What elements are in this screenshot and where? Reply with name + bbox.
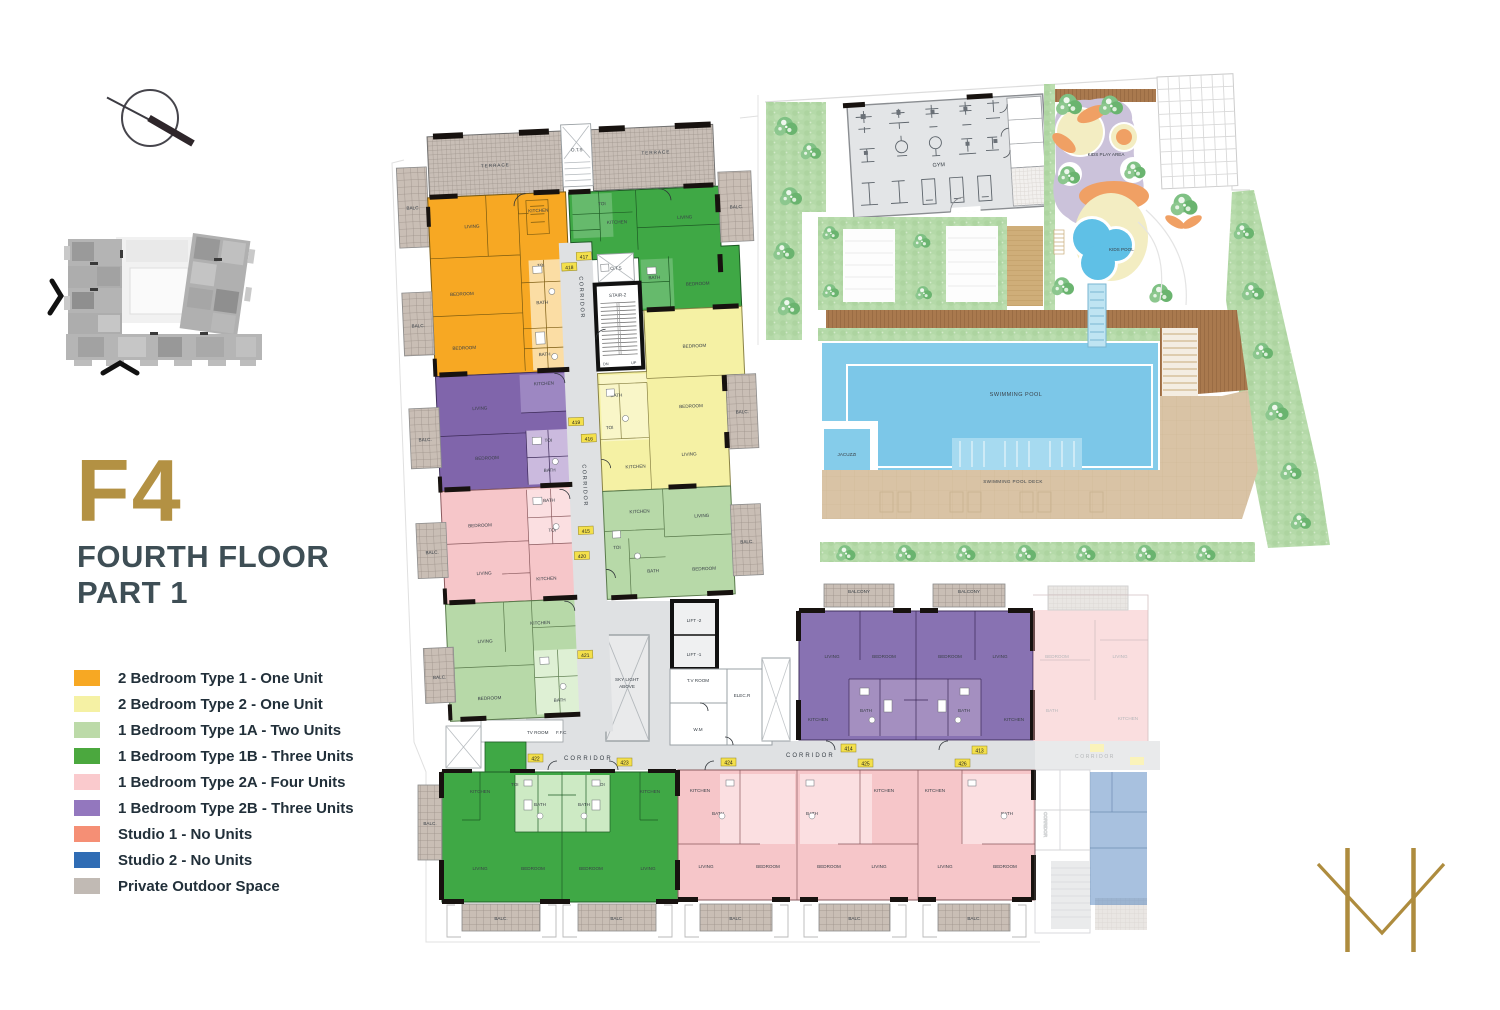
svg-text:BALC.: BALC. xyxy=(494,916,507,921)
svg-text:DN: DN xyxy=(603,362,609,366)
svg-text:W.M: W.M xyxy=(693,727,702,732)
svg-text:BEDROOM: BEDROOM xyxy=(682,343,706,349)
svg-text:O.T.S: O.T.S xyxy=(571,147,583,152)
svg-text:LIVING: LIVING xyxy=(472,405,488,411)
svg-text:SKY LIGHT: SKY LIGHT xyxy=(615,677,639,682)
svg-text:KITCHEN: KITCHEN xyxy=(690,788,710,793)
svg-text:BATH: BATH xyxy=(648,275,660,281)
svg-text:STAIR-2: STAIR-2 xyxy=(609,292,627,298)
svg-text:413: 413 xyxy=(975,749,984,755)
svg-text:BEDROOM: BEDROOM xyxy=(679,403,703,409)
svg-text:FOURTH FLOOR: FOURTH FLOOR xyxy=(77,539,329,574)
svg-text:ELEC.R: ELEC.R xyxy=(734,693,751,698)
svg-text:LIVING: LIVING xyxy=(824,654,839,659)
svg-text:SWIMMING POOL: SWIMMING POOL xyxy=(990,392,1043,398)
svg-text:BEDROOM: BEDROOM xyxy=(686,281,710,287)
svg-text:2 Bedroom Type 2 - One Unit: 2 Bedroom Type 2 - One Unit xyxy=(118,696,323,713)
svg-text:417: 417 xyxy=(580,254,589,260)
svg-text:KITCHEN: KITCHEN xyxy=(1004,717,1024,722)
svg-text:1 Bedroom Type 2A - Four Units: 1 Bedroom Type 2A - Four Units xyxy=(118,774,346,791)
svg-text:BALC.: BALC. xyxy=(423,821,436,826)
svg-text:BEDROOM: BEDROOM xyxy=(475,455,499,461)
svg-text:BALCONY: BALCONY xyxy=(958,589,980,594)
svg-text:BATH: BATH xyxy=(958,708,970,713)
svg-text:BATH: BATH xyxy=(554,697,566,703)
svg-text:ABOVE: ABOVE xyxy=(619,684,635,689)
svg-text:KIDS POOL: KIDS POOL xyxy=(1109,247,1134,252)
svg-text:TOI: TOI xyxy=(613,545,621,550)
svg-text:LIVING: LIVING xyxy=(681,451,697,457)
svg-text:Private Outdoor Space: Private Outdoor Space xyxy=(118,878,280,895)
svg-text:BATH: BATH xyxy=(534,802,546,807)
svg-text:LIVING: LIVING xyxy=(472,866,487,871)
svg-text:BALCONY: BALCONY xyxy=(848,589,870,594)
svg-text:BALC.: BALC. xyxy=(736,409,749,415)
svg-text:LIVING: LIVING xyxy=(871,864,886,869)
svg-text:BALC.: BALC. xyxy=(411,323,424,329)
svg-text:BATH: BATH xyxy=(543,498,555,504)
svg-text:BATH: BATH xyxy=(578,802,590,807)
svg-text:2 Bedroom Type 1 - One Unit: 2 Bedroom Type 1 - One Unit xyxy=(118,670,323,687)
svg-text:BATH: BATH xyxy=(860,708,872,713)
svg-text:BEDROOM: BEDROOM xyxy=(692,566,716,572)
svg-text:PART 1: PART 1 xyxy=(77,575,188,610)
svg-text:416: 416 xyxy=(585,436,594,442)
svg-text:LIVING: LIVING xyxy=(698,864,713,869)
svg-text:KITCHEN: KITCHEN xyxy=(925,788,945,793)
svg-text:LIVING: LIVING xyxy=(1112,654,1127,659)
svg-text:LIVING: LIVING xyxy=(992,654,1007,659)
svg-text:KITCHEN: KITCHEN xyxy=(470,789,490,794)
svg-text:LIVING: LIVING xyxy=(694,513,710,519)
svg-text:LIFT -2: LIFT -2 xyxy=(687,618,702,623)
svg-text:LIVING: LIVING xyxy=(937,864,952,869)
svg-text:BEDROOM: BEDROOM xyxy=(938,654,962,659)
svg-text:O.T.S: O.T.S xyxy=(610,265,622,270)
svg-text:TV ROOM: TV ROOM xyxy=(527,730,549,735)
svg-text:CORRIDOR: CORRIDOR xyxy=(786,753,835,759)
svg-text:LIVING: LIVING xyxy=(477,638,493,644)
svg-text:BEDROOM: BEDROOM xyxy=(478,695,502,701)
svg-text:KITCHEN: KITCHEN xyxy=(536,576,556,582)
svg-text:BALC.: BALC. xyxy=(433,675,446,681)
svg-text:Studio 2 - No Units: Studio 2 - No Units xyxy=(118,852,252,869)
svg-text:BALC.: BALC. xyxy=(729,916,742,921)
svg-text:BEDROOM: BEDROOM xyxy=(452,345,476,351)
svg-text:Studio 1 - No Units: Studio 1 - No Units xyxy=(118,826,252,843)
svg-text:TOI: TOI xyxy=(544,438,552,443)
svg-text:BEDROOM: BEDROOM xyxy=(521,866,545,871)
svg-text:420: 420 xyxy=(578,554,587,560)
svg-text:423: 423 xyxy=(620,761,629,767)
svg-text:418: 418 xyxy=(565,265,574,271)
svg-text:LIVING: LIVING xyxy=(464,224,480,230)
svg-text:KITCHEN: KITCHEN xyxy=(1118,716,1138,721)
svg-text:BATH: BATH xyxy=(539,352,551,358)
svg-text:CORRIDOR: CORRIDOR xyxy=(1075,754,1115,760)
svg-text:BALC.: BALC. xyxy=(425,550,438,556)
svg-text:422: 422 xyxy=(531,757,540,763)
svg-text:BEDROOM: BEDROOM xyxy=(450,291,474,297)
svg-text:LIVING: LIVING xyxy=(640,866,655,871)
svg-text:TOI: TOI xyxy=(606,425,614,430)
svg-text:T.V ROOM: T.V ROOM xyxy=(687,678,709,683)
svg-text:1 Bedroom Type 2B - Three Unit: 1 Bedroom Type 2B - Three Units xyxy=(118,800,354,817)
svg-text:F4: F4 xyxy=(76,441,183,540)
svg-text:BALC.: BALC. xyxy=(418,437,431,443)
svg-text:BEDROOM: BEDROOM xyxy=(756,864,780,869)
svg-text:1 Bedroom Type 1B - Three Unit: 1 Bedroom Type 1B - Three Units xyxy=(118,748,354,765)
svg-text:TOI: TOI xyxy=(511,782,519,787)
svg-text:KITCHEN: KITCHEN xyxy=(629,508,649,514)
svg-text:BALC.: BALC. xyxy=(730,204,743,210)
svg-text:419: 419 xyxy=(572,420,581,426)
svg-text:BEDROOM: BEDROOM xyxy=(993,864,1017,869)
svg-text:KIDS PLAY AREA: KIDS PLAY AREA xyxy=(1088,152,1126,157)
svg-text:CORRIDOR: CORRIDOR xyxy=(1043,812,1048,838)
svg-text:BEDROOM: BEDROOM xyxy=(817,864,841,869)
svg-text:BALC.: BALC. xyxy=(967,916,980,921)
svg-text:BATH: BATH xyxy=(536,300,548,306)
svg-text:TOI: TOI xyxy=(598,201,606,206)
svg-text:KITCHEN: KITCHEN xyxy=(607,219,627,225)
svg-text:1 Bedroom Type 1A - Two Units: 1 Bedroom Type 1A - Two Units xyxy=(118,722,341,739)
svg-text:KITCHEN: KITCHEN xyxy=(874,788,894,793)
svg-text:BEDROOM: BEDROOM xyxy=(468,522,492,528)
svg-text:KITCHEN: KITCHEN xyxy=(808,717,828,722)
svg-text:UP: UP xyxy=(631,361,637,365)
svg-text:JACUZZI: JACUZZI xyxy=(838,452,857,457)
svg-text:BALC.: BALC. xyxy=(610,916,623,921)
svg-text:KITCHEN: KITCHEN xyxy=(534,381,554,387)
svg-text:BALC.: BALC. xyxy=(848,916,861,921)
svg-text:426: 426 xyxy=(958,762,967,768)
svg-text:BEDROOM: BEDROOM xyxy=(872,654,896,659)
svg-text:KITCHEN: KITCHEN xyxy=(640,789,660,794)
svg-text:GYM: GYM xyxy=(932,162,945,169)
svg-text:KITCHEN: KITCHEN xyxy=(528,208,548,214)
svg-text:CORRIDOR: CORRIDOR xyxy=(564,756,613,762)
svg-text:F.F.C: F.F.C xyxy=(556,730,567,735)
svg-text:LIVING: LIVING xyxy=(677,214,693,220)
svg-text:BALC.: BALC. xyxy=(406,205,419,211)
svg-text:415: 415 xyxy=(582,529,591,535)
svg-text:BEDROOM: BEDROOM xyxy=(1045,654,1069,659)
svg-text:421: 421 xyxy=(581,653,590,659)
svg-text:SWIMMING POOL DECK: SWIMMING POOL DECK xyxy=(983,479,1043,484)
svg-text:BATH: BATH xyxy=(544,468,556,474)
svg-text:BATH: BATH xyxy=(647,568,659,574)
svg-text:414: 414 xyxy=(844,747,853,753)
svg-text:KITCHEN: KITCHEN xyxy=(530,620,550,626)
svg-text:425: 425 xyxy=(861,762,870,768)
svg-text:BEDROOM: BEDROOM xyxy=(579,866,603,871)
svg-text:424: 424 xyxy=(724,761,733,767)
svg-text:BATH: BATH xyxy=(1046,708,1058,713)
svg-text:LIFT -1: LIFT -1 xyxy=(687,652,702,657)
svg-text:LIVING: LIVING xyxy=(476,570,492,576)
svg-text:KITCHEN: KITCHEN xyxy=(625,464,645,470)
svg-text:BALC.: BALC. xyxy=(740,539,753,545)
